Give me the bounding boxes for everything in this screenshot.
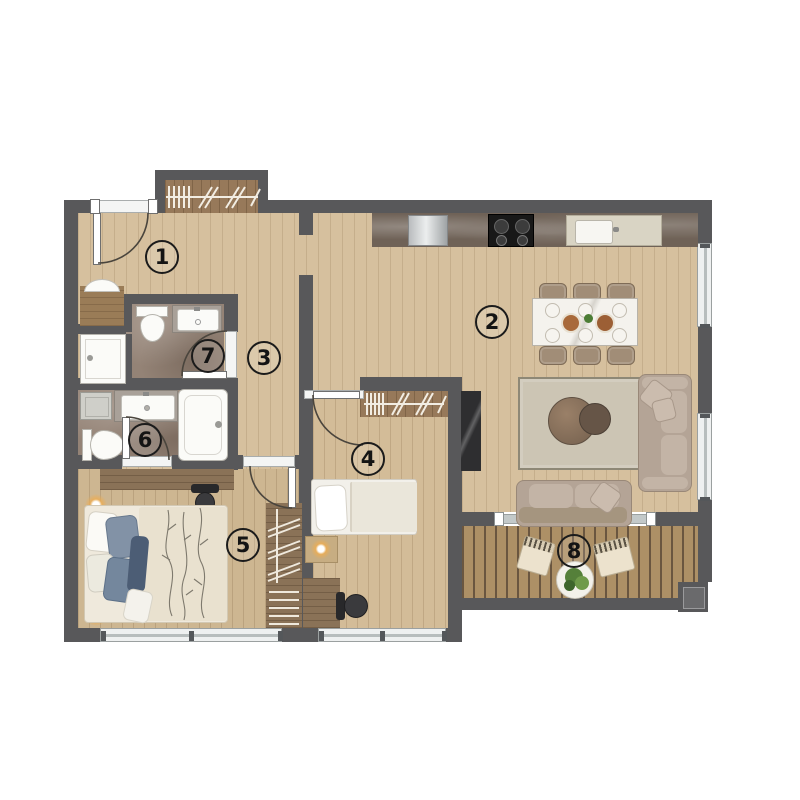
kitchen-sink-icon [575,220,613,244]
bathtub-icon [178,389,228,461]
fridge-icon [408,215,448,246]
balcony-column-inner [683,587,705,609]
room-number: 8 [567,539,582,563]
wall-left [64,200,78,642]
coffee-table-small [579,403,611,435]
room-number: 1 [155,245,170,269]
pillow [314,484,348,532]
duvet [350,482,417,532]
duvet [139,507,227,621]
room-number: 4 [361,447,376,471]
wall-bedroom4-top [360,377,448,391]
room-label-1: 1 [145,240,179,274]
wall-top-b [268,200,712,213]
vanity-counter [172,305,222,333]
window-bedroom5 [100,628,282,642]
room-label-7: 7 [191,339,225,373]
faucet-icon [143,392,149,396]
wall-bedroom5-top-c [295,455,313,469]
plate-icon [545,303,560,318]
room-label-5: 5 [226,528,260,562]
window-living-right-2 [697,413,712,500]
dining-chair [573,346,601,365]
faucet-icon [194,307,200,311]
drain-icon [144,405,150,411]
dining-chair [539,346,567,365]
room-label-4: 4 [351,442,385,476]
bedroom4-bed [311,479,417,535]
washing-machine-icon [80,392,112,420]
plant-icon [564,580,575,591]
bedroom4-wardrobe [360,391,448,417]
slider-jamb-right [646,512,656,526]
room-label-2: 2 [475,305,509,339]
tv-unit [461,391,481,471]
bedroom5-door-leaf [288,467,296,508]
plate-icon [612,328,627,343]
lamp-icon [311,539,331,559]
bedroom5-bed [84,505,228,623]
room-label-8: 8 [557,534,591,568]
drain-icon [87,355,93,361]
bedroom5-threshold [243,456,295,467]
plate-icon [578,328,593,343]
wall-balcony-bottom [460,598,680,610]
kitchen-sink-unit [566,215,662,246]
food-dish-icon [561,313,581,333]
garnish-icon [584,314,593,323]
entry-closet-floor [165,180,258,213]
faucet-icon [613,227,619,232]
wall-bath7-top [122,294,238,304]
floor-plan: 1 2 3 4 5 6 7 8 [0,0,800,800]
room-number: 5 [236,533,251,557]
bedroom4-desk [303,578,340,628]
sofa-right [638,374,692,492]
room-label-6: 6 [128,423,162,457]
entrance-jamb-right [148,199,158,214]
food-dish-icon [595,313,615,333]
wall-living-balcony-a [448,512,498,526]
plate-icon [545,328,560,343]
window-bedroom4 [318,628,446,642]
entrance-door-leaf [93,213,101,265]
niche-wall-right [258,170,268,213]
drain-icon [195,319,201,325]
wall-stub-entry-living [299,213,313,235]
slider-jamb-left [494,512,504,526]
room-number: 7 [201,344,216,368]
shower-icon [80,334,126,384]
wall-bath-right-a [224,294,238,332]
niche-wall-top [155,170,268,180]
faucet-icon [215,421,222,428]
bedroom4-door-leaf [313,391,360,399]
entry-cabinet [80,286,124,326]
wall-living-balcony-b [652,512,698,526]
bedroom5-wardrobe [266,503,302,628]
dining-chair [607,346,635,365]
sofa-bottom [516,480,632,527]
window-living-right-1 [697,243,712,327]
room-number: 6 [138,428,153,452]
entrance-jamb-left [90,199,100,214]
plate-icon [612,303,627,318]
room-label-3: 3 [247,341,281,375]
plant-icon [575,576,589,590]
room-number: 3 [257,346,272,370]
office-chair [336,590,368,622]
room-number: 2 [485,310,500,334]
stove-icon [488,214,534,247]
